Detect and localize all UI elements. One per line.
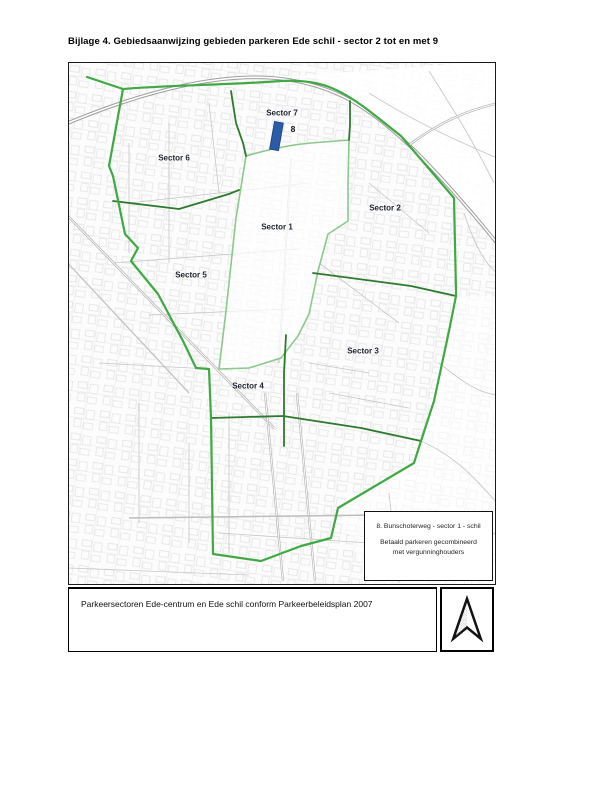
sector-2-label: Sector 2 [369,204,401,213]
sector-3-label: Sector 3 [347,347,379,356]
sector-6-label: Sector 6 [158,154,190,163]
legend-description-line1: Betaald parkeren gecombineerd [365,539,492,546]
caption-box: Parkeersectoren Ede-centrum en Ede schil… [68,587,437,652]
sector-4-label: Sector 4 [232,382,264,391]
map-legend: 8. Bunschoterweg - sector 1 - schil Beta… [364,511,493,581]
sector-labels-layer: Sector 7Sector 6Sector 2Sector 1Sector 5… [69,63,495,584]
legend-title: 8. Bunschoterweg - sector 1 - schil [365,523,492,530]
caption-text: Parkeersectoren Ede-centrum en Ede schil… [81,599,373,609]
north-arrow-box [440,587,494,652]
legend-description-line2: met vergunninghouders [365,549,492,556]
area8-number-label: 8 [291,124,296,134]
sector-7-label: Sector 7 [266,109,298,118]
document-page: { "page": { "title": "Bijlage 4. Gebieds… [0,0,612,792]
parking-sectors-map: Sector 7Sector 6Sector 2Sector 1Sector 5… [68,62,496,585]
north-arrow-icon [448,595,486,645]
sector-5-label: Sector 5 [175,271,207,280]
sector-1-label: Sector 1 [261,223,293,232]
page-title: Bijlage 4. Gebiedsaanwijzing gebieden pa… [68,36,548,47]
